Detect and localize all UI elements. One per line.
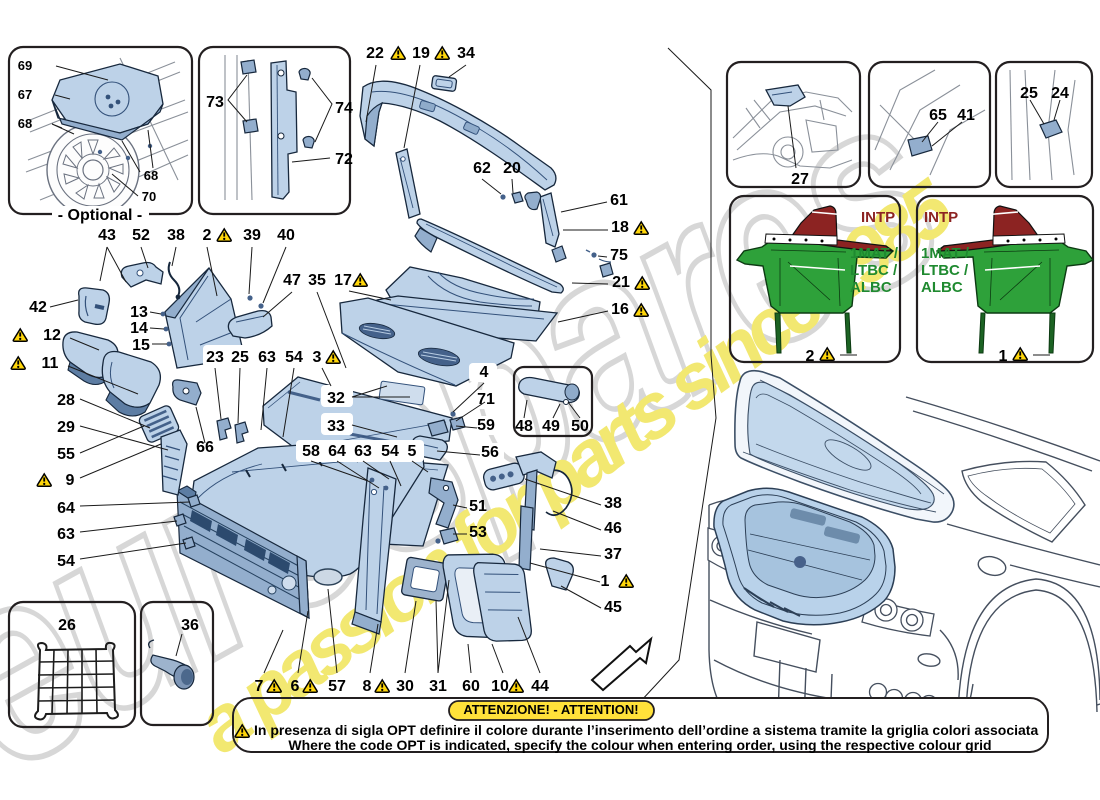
svg-text:54: 54 xyxy=(381,443,399,460)
svg-text:ATTENZIONE! - ATTENTION!: ATTENZIONE! - ATTENTION! xyxy=(463,702,638,717)
svg-text:69: 69 xyxy=(18,58,32,73)
svg-text:32: 32 xyxy=(327,390,345,407)
svg-text:56: 56 xyxy=(481,444,499,461)
svg-text:3: 3 xyxy=(313,349,322,366)
svg-text:5: 5 xyxy=(408,443,417,460)
svg-text:41: 41 xyxy=(957,107,975,124)
svg-text:6: 6 xyxy=(291,678,300,695)
svg-text:47: 47 xyxy=(283,272,301,289)
svg-text:In presenza di sigla OPT defin: In presenza di sigla OPT definire il col… xyxy=(254,722,1038,738)
svg-text:72: 72 xyxy=(335,151,353,168)
svg-text:58: 58 xyxy=(302,443,320,460)
svg-text:1MAT /: 1MAT / xyxy=(921,245,970,262)
svg-text:14: 14 xyxy=(130,320,148,337)
svg-text:16: 16 xyxy=(611,301,629,318)
svg-text:2: 2 xyxy=(203,227,212,244)
svg-text:26: 26 xyxy=(58,617,76,634)
svg-text:39: 39 xyxy=(243,227,261,244)
svg-text:LTBC /: LTBC / xyxy=(921,262,969,279)
svg-text:49: 49 xyxy=(542,418,560,435)
svg-text:71: 71 xyxy=(477,391,495,408)
svg-text:1: 1 xyxy=(601,573,610,590)
svg-text:53: 53 xyxy=(469,524,487,541)
svg-text:30: 30 xyxy=(396,678,414,695)
svg-text:INTP: INTP xyxy=(924,209,958,226)
svg-text:75: 75 xyxy=(610,247,628,264)
svg-text:19: 19 xyxy=(412,45,430,62)
svg-text:38: 38 xyxy=(604,495,622,512)
svg-text:13: 13 xyxy=(130,304,148,321)
svg-text:12: 12 xyxy=(43,327,61,344)
svg-text:8: 8 xyxy=(363,678,372,695)
svg-text:ALBC: ALBC xyxy=(850,279,892,296)
svg-text:22: 22 xyxy=(366,45,384,62)
svg-text:25: 25 xyxy=(231,349,249,366)
svg-text:73: 73 xyxy=(206,94,224,111)
svg-text:31: 31 xyxy=(429,678,447,695)
svg-text:67: 67 xyxy=(18,87,32,102)
svg-text:1: 1 xyxy=(999,348,1008,365)
svg-text:61: 61 xyxy=(610,192,628,209)
svg-text:35: 35 xyxy=(308,272,326,289)
svg-text:36: 36 xyxy=(181,617,199,634)
svg-text:66: 66 xyxy=(196,439,214,456)
svg-text:2: 2 xyxy=(806,348,815,365)
svg-text:42: 42 xyxy=(29,299,47,316)
svg-text:52: 52 xyxy=(132,227,150,244)
svg-text:11: 11 xyxy=(42,355,59,372)
svg-text:70: 70 xyxy=(142,189,156,204)
svg-text:24: 24 xyxy=(1051,85,1069,102)
svg-text:63: 63 xyxy=(354,443,372,460)
svg-text:68: 68 xyxy=(144,168,158,183)
svg-text:62: 62 xyxy=(473,160,491,177)
svg-text:18: 18 xyxy=(611,219,629,236)
svg-text:17: 17 xyxy=(334,272,352,289)
svg-text:45: 45 xyxy=(604,599,622,616)
svg-text:20: 20 xyxy=(503,160,521,177)
svg-text:9: 9 xyxy=(66,472,75,489)
svg-text:Where the code OPT is indicate: Where the code OPT is indicated, specify… xyxy=(288,737,991,753)
svg-text:48: 48 xyxy=(515,418,533,435)
svg-text:28: 28 xyxy=(57,392,75,409)
svg-text:64: 64 xyxy=(57,500,75,517)
svg-text:21: 21 xyxy=(612,274,630,291)
svg-text:7: 7 xyxy=(255,678,264,695)
svg-text:51: 51 xyxy=(469,498,487,515)
svg-text:40: 40 xyxy=(277,227,295,244)
svg-text:37: 37 xyxy=(604,546,622,563)
svg-text:74: 74 xyxy=(335,100,353,117)
svg-text:34: 34 xyxy=(457,45,475,62)
svg-text:INTP: INTP xyxy=(861,209,895,226)
svg-text:10: 10 xyxy=(491,678,509,695)
svg-text:29: 29 xyxy=(57,419,75,436)
svg-text:54: 54 xyxy=(285,349,303,366)
svg-text:55: 55 xyxy=(57,446,75,463)
svg-text:33: 33 xyxy=(327,418,345,435)
svg-text:- Optional -: - Optional - xyxy=(58,207,142,224)
svg-text:LTBC /: LTBC / xyxy=(850,262,898,279)
svg-text:43: 43 xyxy=(98,227,116,244)
svg-text:59: 59 xyxy=(477,417,495,434)
svg-text:57: 57 xyxy=(328,678,346,695)
svg-text:54: 54 xyxy=(57,553,75,570)
svg-text:63: 63 xyxy=(57,526,75,543)
svg-text:60: 60 xyxy=(462,678,480,695)
svg-text:27: 27 xyxy=(791,171,809,188)
svg-text:65: 65 xyxy=(929,107,947,124)
svg-text:38: 38 xyxy=(167,227,185,244)
svg-text:1MAT /: 1MAT / xyxy=(850,245,899,262)
svg-text:63: 63 xyxy=(258,349,276,366)
svg-text:15: 15 xyxy=(132,337,150,354)
svg-text:46: 46 xyxy=(604,520,622,537)
svg-text:64: 64 xyxy=(328,443,346,460)
svg-text:50: 50 xyxy=(571,418,589,435)
svg-text:23: 23 xyxy=(206,349,224,366)
svg-text:44: 44 xyxy=(531,678,549,695)
svg-text:25: 25 xyxy=(1020,85,1038,102)
svg-text:4: 4 xyxy=(480,364,489,381)
svg-text:68: 68 xyxy=(18,116,32,131)
svg-text:ALBC: ALBC xyxy=(921,279,963,296)
